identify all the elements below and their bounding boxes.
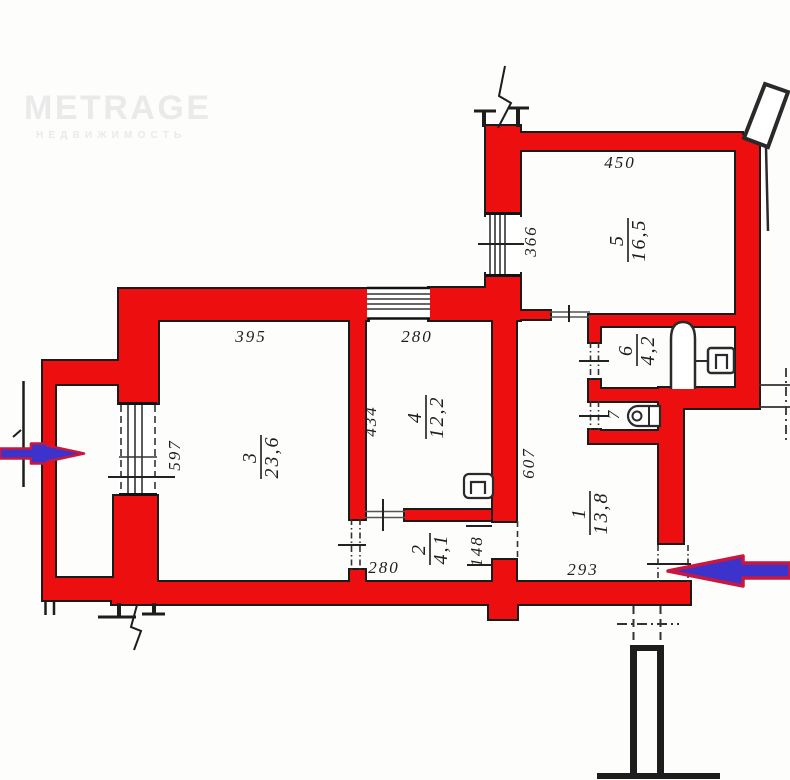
svg-text:6: 6 [615,344,637,356]
svg-text:293: 293 [567,560,599,579]
svg-text:4: 4 [404,411,426,423]
svg-text:607: 607 [519,447,538,479]
svg-text:METRAGE: METRAGE [24,89,212,127]
svg-text:4,2: 4,2 [637,335,659,366]
svg-text:280: 280 [368,558,400,577]
svg-text:13,8: 13,8 [590,492,612,535]
svg-text:НЕДВИЖИМОСТЬ: НЕДВИЖИМОСТЬ [36,130,186,141]
svg-text:434: 434 [361,405,380,437]
svg-text:148: 148 [467,535,486,567]
svg-text:395: 395 [234,327,267,346]
svg-text:366: 366 [521,225,540,258]
svg-text:2: 2 [408,543,430,555]
svg-text:450: 450 [604,153,636,172]
svg-text:7: 7 [604,409,623,420]
svg-text:3: 3 [239,451,261,464]
svg-text:4,1: 4,1 [430,534,452,565]
svg-text:597: 597 [165,439,184,471]
svg-text:1: 1 [568,507,590,519]
svg-text:5: 5 [606,234,628,246]
svg-text:12,2: 12,2 [426,396,448,439]
svg-text:23,6: 23,6 [261,436,283,479]
svg-text:16,5: 16,5 [628,219,650,262]
svg-text:280: 280 [401,327,433,346]
